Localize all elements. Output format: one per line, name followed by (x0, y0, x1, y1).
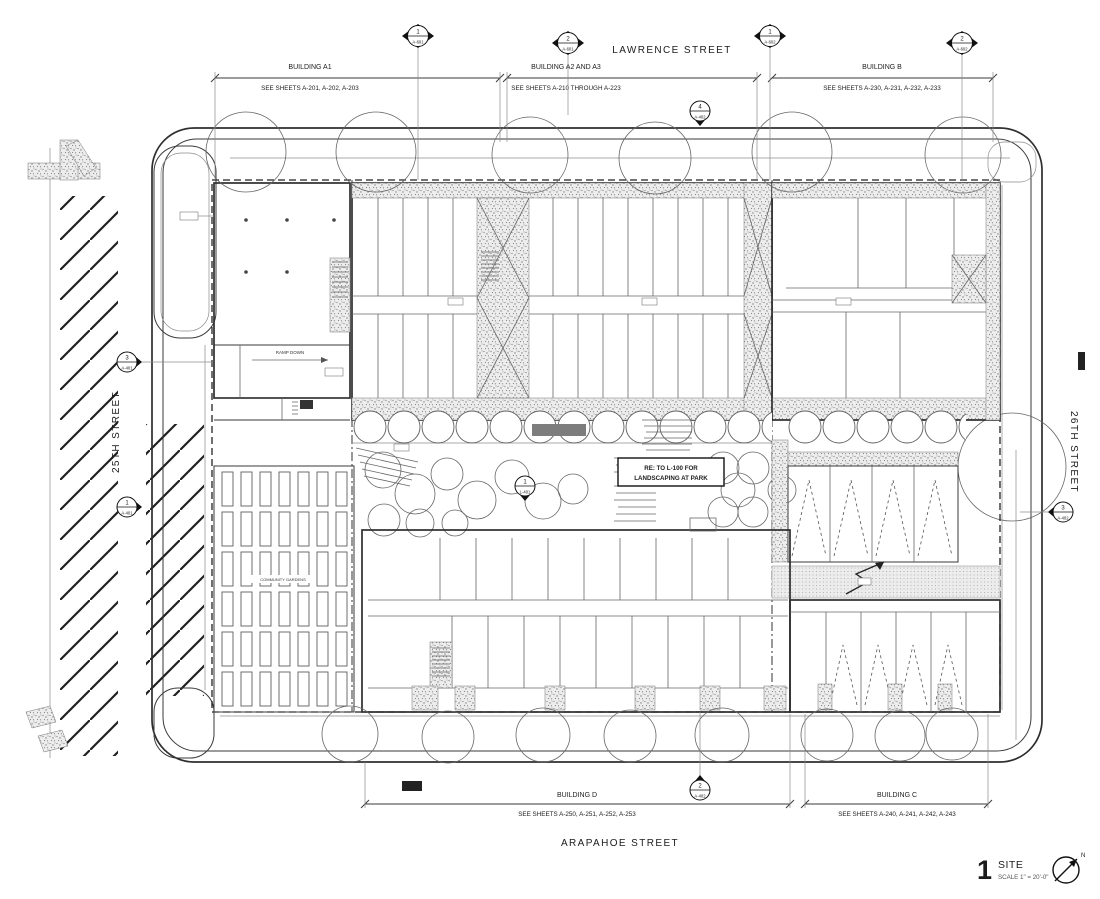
section-marker-1-a602: 1 A-602 (754, 24, 786, 180)
street-trees-lawrence (206, 112, 1001, 194)
north-arrow-icon: N (1053, 853, 1085, 883)
park-note: RE: TO L-100 FOR LANDSCAPING AT PARK (618, 458, 724, 486)
stair-core-b (952, 255, 986, 303)
building-a2a3-label: BUILDING A2 AND A3 (531, 64, 601, 71)
existing-building-hatch-west (60, 196, 118, 756)
stair-core-a1 (330, 258, 350, 332)
paseo-park: RE: TO L-100 FOR LANDSCAPING AT PARK (352, 410, 966, 537)
svg-text:A-601: A-601 (412, 40, 424, 45)
building-c-label: BUILDING C (877, 792, 917, 799)
svg-text:A-602: A-602 (956, 47, 968, 52)
svg-text:A-402: A-402 (694, 794, 706, 799)
building-a2a3-callout: BUILDING A2 AND A3 SEE SHEETS A-210 THRO… (503, 64, 761, 180)
svg-text:A-601: A-601 (562, 47, 574, 52)
ramp-label: RAMP DOWN (276, 350, 304, 355)
street-trees-arapahoe (322, 706, 978, 763)
keynote-tag (394, 444, 409, 451)
north-wall-stipple (352, 183, 772, 198)
elevation-marker-left-upper: 3 A-401 (117, 352, 213, 372)
corner-plaza-circle (958, 413, 1066, 521)
svg-text:A-402: A-402 (694, 115, 706, 120)
unit-tag (448, 298, 463, 305)
site-plan-drawing: RAMP DOWN (0, 0, 1100, 899)
building-a1-plan: RAMP DOWN (180, 183, 350, 420)
unit-tag (836, 298, 851, 305)
stair-core-d (430, 642, 452, 688)
driveway-band (772, 562, 1000, 598)
view-title: 1 SITE SCALE 1" = 20'-0" N (977, 853, 1085, 885)
curb-fragment (26, 706, 56, 728)
east-wall-stipple (986, 183, 1000, 420)
street-label-arapahoe: ARAPAHOE STREET (561, 838, 679, 849)
corridor-a2a3 (352, 296, 744, 314)
street-label-25th: 25TH STREET (111, 391, 122, 473)
building-a1-label: BUILDING A1 (288, 64, 331, 71)
building-c-sheets: SEE SHEETS A-240, A-241, A-242, A-243 (838, 811, 956, 818)
building-d-plan (362, 518, 790, 712)
svg-text:A-402: A-402 (1057, 516, 1069, 521)
keynote-tag (325, 368, 343, 376)
stoop-stipple-patches (412, 686, 786, 710)
garden-beds (219, 469, 352, 709)
existing-building-hatch-southwest (146, 424, 204, 696)
ramp-arrow (252, 357, 328, 363)
unit-tag (642, 298, 657, 305)
view-name: SITE (998, 859, 1023, 871)
landscape-marker: 1 L-401 (515, 476, 535, 501)
garage-court (772, 440, 958, 562)
building-d-callout: BUILDING D SEE SHEETS A-250, A-251, A-25… (361, 714, 794, 818)
building-d-sheets: SEE SHEETS A-250, A-251, A-252, A-253 (518, 811, 636, 818)
keynote-tag (180, 212, 198, 220)
building-a1-callout: BUILDING A1 SEE SHEETS A-201, A-202, A-2… (211, 64, 504, 180)
svg-text:A-602: A-602 (764, 40, 776, 45)
view-number: 1 (977, 855, 992, 885)
svg-text:A-401: A-401 (121, 511, 133, 516)
unit-demising-walls-upper (378, 198, 728, 296)
garage-ramp-chevron (792, 480, 826, 556)
building-a2a3-sheets: SEE SHEETS A-210 THROUGH A-223 (511, 85, 621, 92)
park-note-line2: LANDSCAPING AT PARK (634, 475, 708, 482)
building-c-plan (790, 600, 1000, 712)
building-c-callout: BUILDING C SEE SHEETS A-240, A-241, A-24… (801, 714, 992, 818)
stair-core-2 (744, 183, 772, 420)
service-rooms-a1 (282, 398, 313, 420)
unit-demising-walls-lower (378, 314, 728, 398)
street-label-lawrence: LAWRENCE STREET (612, 45, 732, 56)
park-note-line1: RE: TO L-100 FOR (644, 465, 698, 472)
community-gardens-label: COMMUNITY GARDENS (260, 577, 306, 582)
grid-mark (402, 781, 422, 791)
section-marker-2-a601: 2 A-601 (552, 31, 584, 115)
view-scale: SCALE 1" = 20'-0" (998, 874, 1048, 881)
elevation-marker-top: 4 A-402 (690, 101, 710, 126)
section-marker-1-a601: 1 A-601 (402, 24, 434, 180)
street-label-26th: 26TH STREET (1068, 411, 1079, 493)
building-b-callout: BUILDING B SEE SHEETS A-230, A-231, A-23… (768, 64, 997, 142)
elevation-marker-left-lower: 1 A-401 (117, 497, 142, 517)
utility-mark (1078, 352, 1085, 370)
building-a1-sheets: SEE SHEETS A-201, A-202, A-203 (261, 85, 359, 92)
site-plan-sheet: RAMP DOWN (0, 0, 1100, 899)
building-b-plan (772, 183, 1000, 420)
svg-text:L-401: L-401 (520, 490, 531, 495)
street-tree-row-paseo-east (788, 410, 966, 444)
stair-core-1 (477, 198, 529, 398)
community-gardens: COMMUNITY GARDENS (214, 466, 354, 712)
building-d-label: BUILDING D (557, 792, 597, 799)
elevation-marker-bottom: 2 A-402 (690, 712, 710, 800)
garage-door-swing (830, 645, 857, 705)
building-b-label: BUILDING B (862, 64, 902, 71)
north-label: N (1081, 853, 1085, 859)
water-feature (532, 424, 586, 436)
column-grid-dots (244, 218, 336, 274)
building-b-sheets: SEE SHEETS A-230, A-231, A-232, A-233 (823, 85, 941, 92)
svg-text:A-401: A-401 (121, 366, 133, 371)
building-a2a3-plan (352, 183, 1000, 420)
park-tree-cluster-west (365, 452, 588, 537)
